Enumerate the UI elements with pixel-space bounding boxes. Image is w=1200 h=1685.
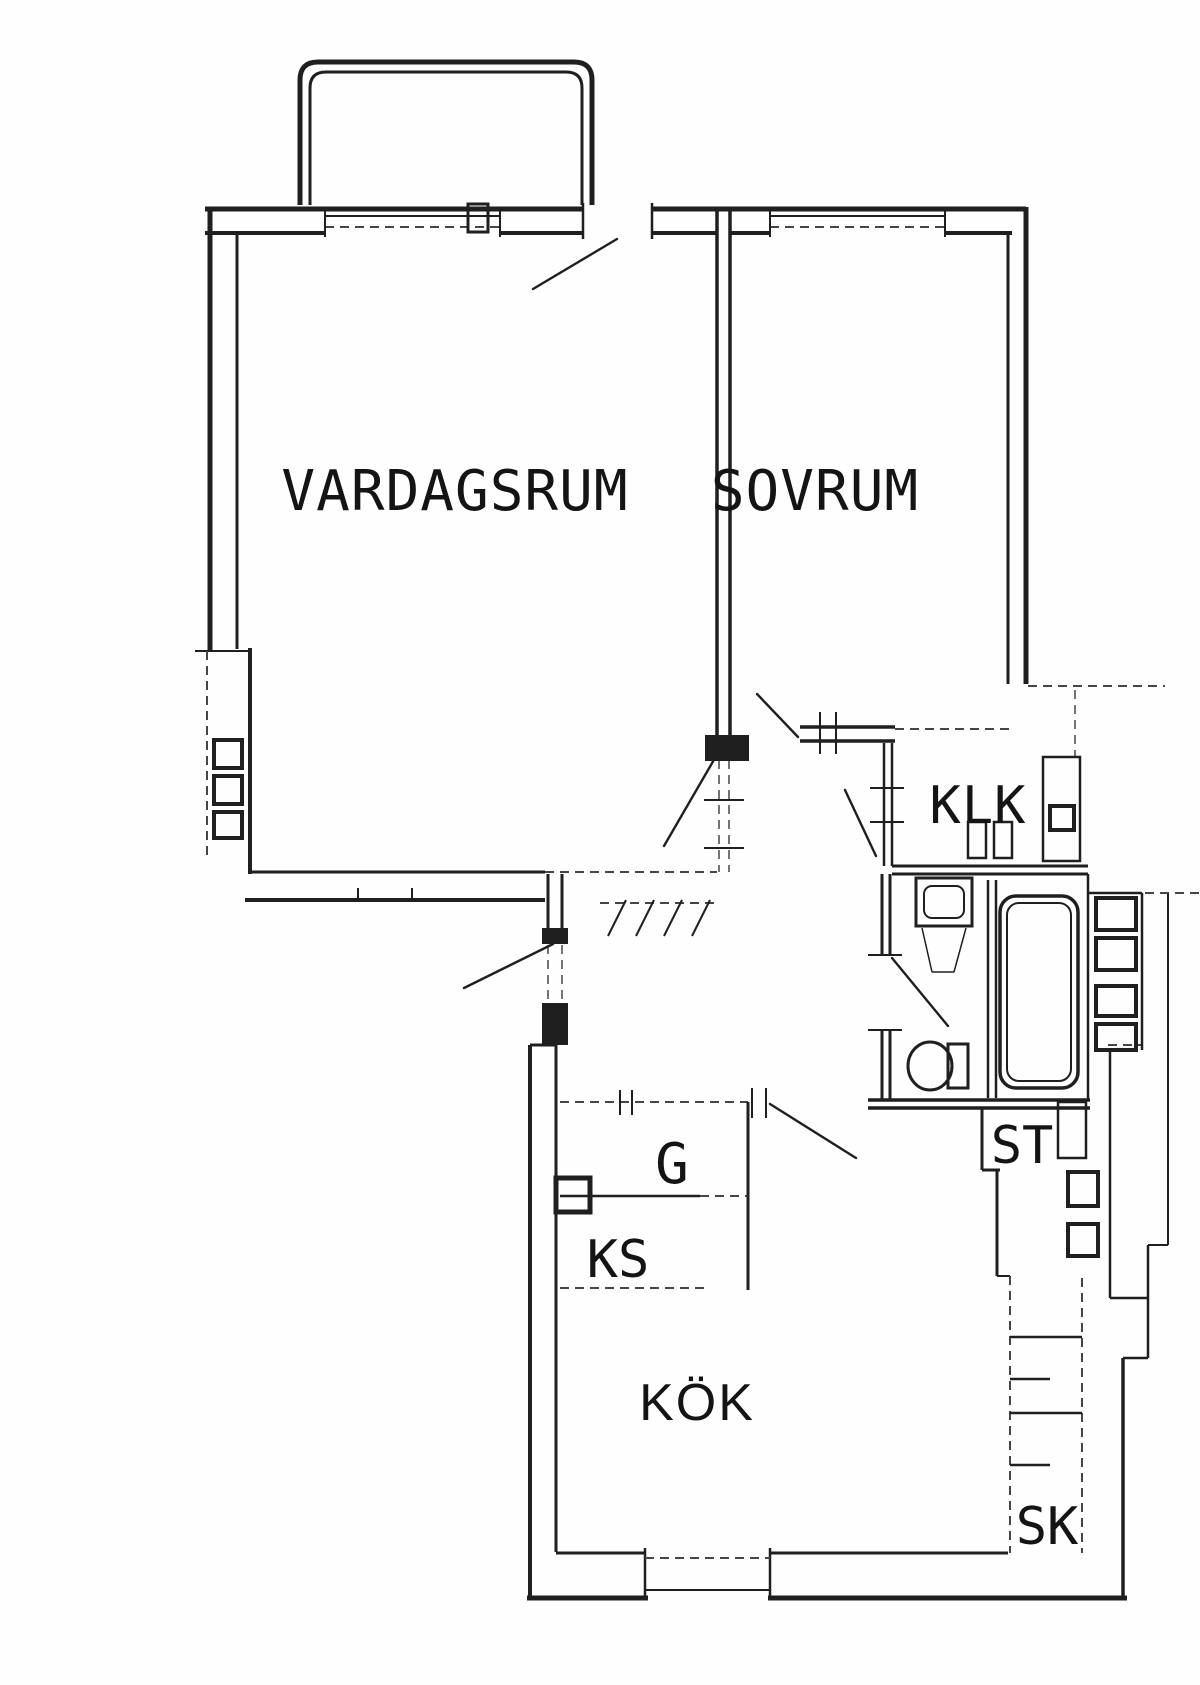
closet-label-g: G [655,1132,689,1197]
balcony-group [300,62,592,205]
shaft-box [214,740,242,768]
shaft-box [1096,986,1136,1016]
solid-blocks-group [542,735,749,1045]
shaft-box [1096,898,1136,930]
st-door-panel [1058,1102,1086,1158]
wall-segment [692,900,710,936]
duct-box [1050,806,1074,830]
closet-label-sk: SK [1016,1497,1079,1557]
wall-junction-block [705,735,749,761]
shaft-box [214,776,242,804]
entrance-pier-block [542,1003,568,1045]
floor-plan-image: VARDAGSRUMSOVRUMKLKGKSSTKÖKSK [0,0,1200,1685]
shaft-box [1096,938,1136,970]
closet-label-st: ST [991,1116,1054,1176]
kitchen-door-leaf [770,1104,856,1158]
wc-bowl [908,1042,952,1090]
room-label-sovrum: SOVRUM [711,459,919,524]
livingroom-door-leaf [664,758,715,846]
shaft-box [1068,1224,1098,1256]
bathtub-inner [1007,903,1071,1081]
room-label-klk: KLK [930,776,1027,836]
balcony-railing-outer [300,62,592,205]
entrance-door-leaf [464,944,553,988]
wall-segment [636,900,654,936]
shaft-box [1068,1172,1098,1206]
room-label-vardagsrum: VARDAGSRUM [281,459,628,524]
wall-segment [608,900,626,936]
balcony-railing-inner [310,72,582,205]
room-label-kok: KÖK [639,1374,755,1432]
bathroom-door-leaf [892,958,948,1026]
wall-segment [664,900,682,936]
wall-segment [922,928,932,972]
entrance-hinge-block [542,928,568,944]
bathtub-outer [1000,896,1078,1088]
fixtures-group [214,204,1136,1256]
bedroom-door-leaf [757,694,798,737]
shaft-box [1096,1024,1136,1050]
appliance-label-ks: KS [587,1230,650,1290]
washbasin-inner [924,886,964,918]
shaft-box [214,812,242,838]
floor-plan-svg: VARDAGSRUMSOVRUMKLKGKSSTKÖKSK [0,0,1200,1685]
wall-segment [954,928,966,972]
labels-group: VARDAGSRUMSOVRUMKLKGKSSTKÖKSK [281,459,1079,1557]
balcony-door-leaf [533,239,617,289]
doors-group [464,239,948,1158]
